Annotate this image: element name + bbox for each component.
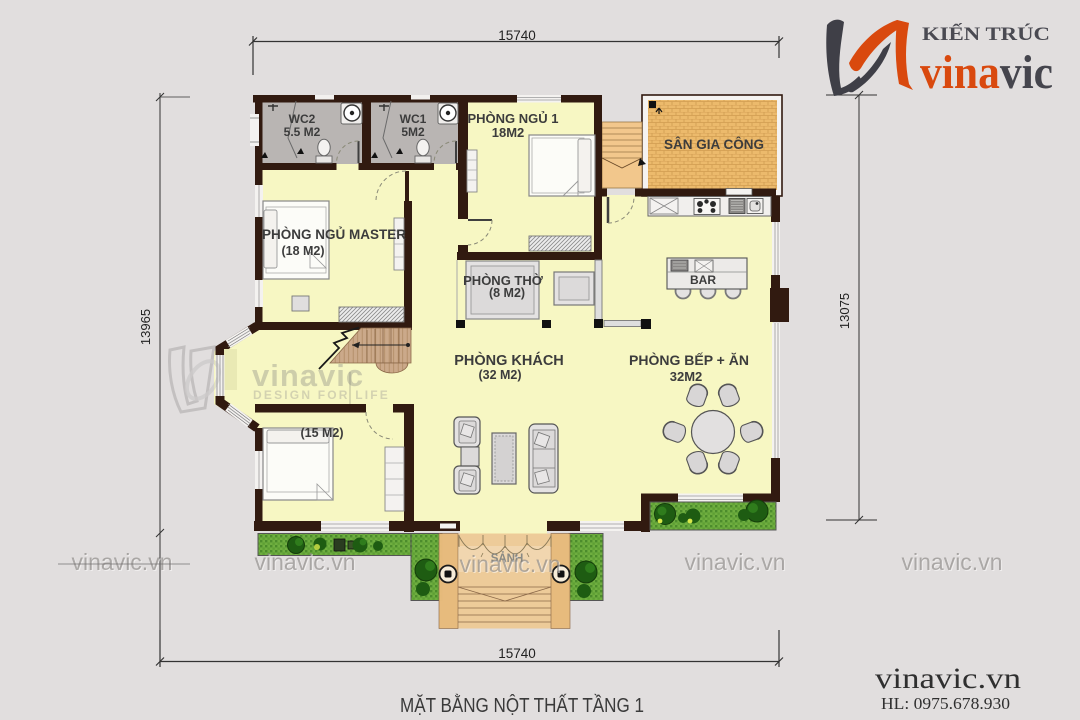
svg-text:13965: 13965 xyxy=(138,309,153,345)
svg-text:vinavic.vn: vinavic.vn xyxy=(255,549,356,575)
svg-text:vinavic.vn: vinavic.vn xyxy=(902,549,1003,575)
svg-text:vinavic.vn: vinavic.vn xyxy=(460,551,561,577)
svg-text:15740: 15740 xyxy=(498,646,536,661)
svg-text:PHÒNG KHÁCH: PHÒNG KHÁCH xyxy=(454,351,564,369)
svg-text:BAR: BAR xyxy=(690,273,716,287)
svg-text:HL: 0975.678.930: HL: 0975.678.930 xyxy=(881,694,1010,713)
svg-text:PHÒNG BẾP + ĂN: PHÒNG BẾP + ĂN xyxy=(629,351,749,368)
svg-text:vinavic.vn: vinavic.vn xyxy=(72,549,173,575)
svg-text:18M2: 18M2 xyxy=(492,125,525,140)
svg-text:(8 M2): (8 M2) xyxy=(489,286,525,300)
svg-text:5M2: 5M2 xyxy=(401,125,425,139)
svg-text:(32 M2): (32 M2) xyxy=(478,368,521,382)
svg-text:WC1: WC1 xyxy=(400,112,427,126)
svg-text:PHÒNG NGỦ 1: PHÒNG NGỦ 1 xyxy=(467,111,558,126)
svg-text:vinavic.vn: vinavic.vn xyxy=(875,662,1021,695)
svg-text:32M2: 32M2 xyxy=(670,369,703,384)
svg-text:(18 M2): (18 M2) xyxy=(281,244,324,258)
svg-text:vinavic.vn: vinavic.vn xyxy=(685,549,786,575)
svg-text:MẶT BẰNG NỘT THẤT TẦNG 1: MẶT BẰNG NỘT THẤT TẦNG 1 xyxy=(400,693,644,717)
svg-text:WC2: WC2 xyxy=(289,112,316,126)
svg-text:15740: 15740 xyxy=(498,28,536,43)
svg-text:(15 M2): (15 M2) xyxy=(300,426,343,440)
svg-text:13075: 13075 xyxy=(837,293,852,329)
svg-text:PHÒNG NGỦ MASTER: PHÒNG NGỦ MASTER xyxy=(262,227,406,242)
svg-text:KIẾN TRÚC: KIẾN TRÚC xyxy=(922,23,1050,45)
svg-text:vinavic: vinavic xyxy=(920,46,1053,99)
svg-text:5.5 M2: 5.5 M2 xyxy=(284,125,321,139)
svg-text:SÂN GIA CÔNG: SÂN GIA CÔNG xyxy=(664,137,764,152)
svg-text:DESIGN FOR LIFE: DESIGN FOR LIFE xyxy=(253,388,390,402)
